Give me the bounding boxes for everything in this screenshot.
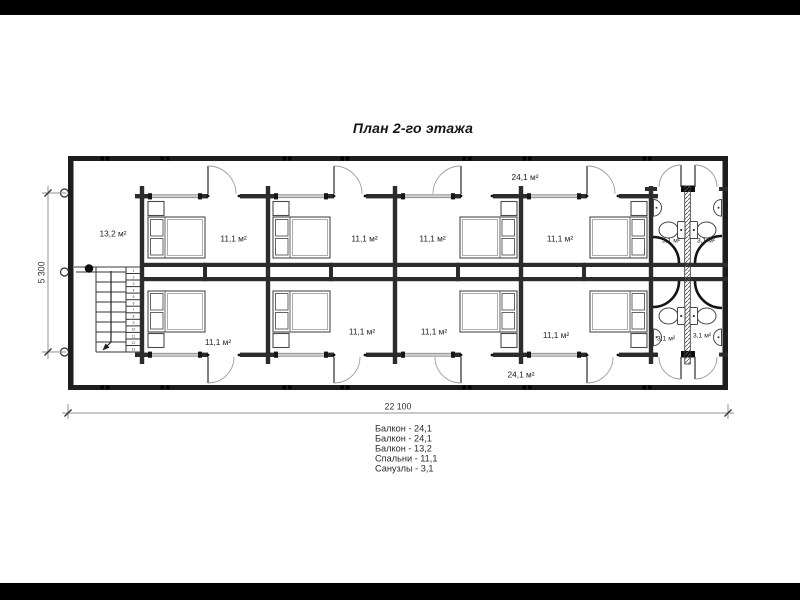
window-icon [401, 352, 455, 358]
window-icon [274, 352, 328, 358]
toilet-icon [659, 308, 685, 325]
svg-text:6: 6 [133, 302, 135, 306]
bathroom-label: 3,1 м² [693, 333, 712, 340]
bedroom-label: 11,1 м² [220, 234, 247, 244]
door-icon [433, 166, 493, 197]
svg-text:13: 13 [132, 347, 136, 351]
door-icon [659, 165, 681, 187]
depth-dimension-label: 5 300 [37, 261, 47, 283]
bed-icon [148, 202, 205, 259]
bed-icon [273, 291, 330, 348]
svg-text:7: 7 [133, 308, 135, 312]
width-dimension-label: 22 100 [385, 402, 412, 412]
bed-icon [460, 202, 517, 259]
legend-item: Балкон - 24,1 [375, 434, 432, 444]
bathroom-label: 3,1 м² [657, 336, 676, 343]
bedroom-label: 11,1 м² [421, 327, 448, 337]
legend-item: Спальни - 11,1 [375, 454, 437, 464]
svg-text:5: 5 [133, 295, 135, 299]
bedroom-label: 11,1 м² [547, 234, 574, 244]
door-icon [586, 166, 620, 197]
legend-item: Балкон - 24,1 [375, 424, 432, 434]
middle-wall [74, 263, 728, 281]
bedroom-label: 11,1 м² [351, 234, 378, 244]
beds [148, 202, 647, 348]
window-icon [527, 193, 581, 199]
svg-text:1: 1 [133, 269, 135, 273]
door-icon [207, 166, 241, 197]
window-icon [274, 193, 328, 199]
door-icon [435, 354, 493, 383]
hatched-partition-wall [685, 186, 691, 364]
door-icon [659, 357, 681, 379]
sink-icon [714, 200, 722, 217]
shower-icon [695, 281, 722, 308]
balcony-left-label: 13,2 м² [100, 229, 127, 239]
svg-text:8: 8 [133, 315, 135, 319]
shower-icon [653, 281, 679, 307]
stair-direction-arrow [105, 271, 112, 349]
legend: Балкон - 24,1 Балкон - 24,1 Балкон - 13,… [375, 424, 437, 474]
door-icon [586, 354, 620, 383]
staircase: 1 2 3 4 5 6 7 8 9 10 11 12 13 [76, 264, 140, 352]
toilet-icon [690, 222, 716, 239]
dimension-width: 22 100 [62, 402, 734, 420]
bed-icon [590, 291, 647, 348]
toilet-icon [690, 308, 716, 325]
svg-text:11: 11 [132, 334, 136, 338]
door-icon [207, 354, 241, 383]
door-icon [695, 357, 717, 379]
left-wall-axis-markers [61, 189, 69, 356]
svg-text:4: 4 [133, 288, 135, 292]
bed-icon [590, 202, 647, 259]
svg-text:9: 9 [133, 321, 135, 325]
floor-plan-page: План 2-го этажа [0, 0, 800, 600]
svg-text:10: 10 [132, 328, 136, 332]
legend-item: Санузлы - 3,1 [375, 464, 434, 474]
window-icon [401, 193, 455, 199]
svg-text:2: 2 [133, 275, 135, 279]
legend-item: Балкон - 13,2 [375, 444, 432, 454]
door-icon [333, 166, 367, 197]
bathroom-label: 3,1 м² [662, 238, 681, 245]
bedroom-label: 11,1 м² [543, 330, 570, 340]
bathroom-label: 3,1 м² [697, 238, 716, 245]
svg-text:12: 12 [132, 341, 136, 345]
sink-icon [654, 200, 662, 217]
room-labels: 13,2 м² 24,1 м² 24,1 м² 11,1 м² 11,1 м² … [100, 172, 716, 380]
toilet-icon [659, 222, 685, 239]
window-icon [148, 352, 202, 358]
door-icon [333, 354, 367, 383]
bedroom-label: 11,1 м² [419, 234, 446, 244]
door-icon [695, 165, 717, 187]
bedroom-label: 11,1 м² [349, 327, 376, 337]
stair-newel-marker [85, 264, 94, 273]
bed-icon [273, 202, 330, 259]
bed-icon [148, 291, 205, 348]
balcony-top-label: 24,1 м² [512, 172, 539, 182]
window-icon [527, 352, 581, 358]
bedroom-label: 11,1 м² [205, 337, 232, 347]
bed-icon [460, 291, 517, 348]
balcony-bottom-label: 24,1 м² [508, 370, 535, 380]
window-icon [148, 193, 202, 199]
sink-icon [714, 329, 722, 346]
floor-plan-drawing: План 2-го этажа [0, 0, 800, 600]
svg-text:3: 3 [133, 282, 135, 286]
page-title: План 2-го этажа [353, 120, 473, 136]
